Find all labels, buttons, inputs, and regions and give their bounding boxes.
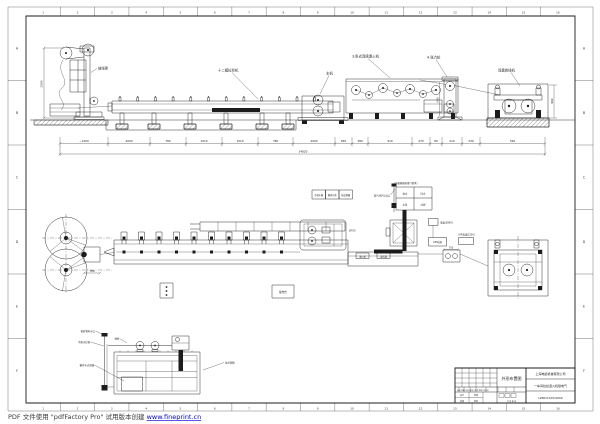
project-name: 一车间拉丝退火机组电气	[534, 383, 567, 388]
zone-col-label: 8	[282, 406, 284, 410]
takeup-plan	[488, 236, 548, 300]
payoff-label: 放线架	[98, 66, 109, 71]
watermark-prefix: PDF 文件使用 "pdfFactory Pro" 试用版本创建	[8, 412, 147, 421]
zone-col-label: 6	[214, 10, 216, 14]
accumulator-height-dim: 1465	[436, 97, 439, 103]
vertical-dimensions: 2500 990 1465	[40, 47, 558, 120]
company-name: 上海电缆机械有限公司	[535, 371, 565, 376]
watermark: PDF 文件使用 "pdfFactory Pro" 试用版本创建 www.fin…	[8, 412, 201, 421]
cell-4: 过滤	[421, 203, 426, 207]
cell-2: 回水	[421, 191, 426, 195]
zone-col-label: 11	[385, 406, 389, 410]
zone-row-label: B	[16, 111, 18, 115]
zone-row-label: A	[583, 46, 586, 50]
zone-col-label: 14	[487, 10, 491, 14]
zone-col-label: 13	[453, 10, 457, 14]
console-label: 操作台	[279, 290, 287, 294]
power-dim: 750	[449, 246, 454, 249]
hull-note: Ø700	[349, 230, 356, 233]
dim-value: 650	[341, 139, 347, 143]
field-design: 设计	[460, 393, 464, 397]
level-label: 平衡水位管	[78, 340, 91, 344]
zone-row-label: B	[583, 111, 585, 115]
dim-value: ~1200	[79, 139, 89, 143]
walkway-plan	[190, 222, 345, 231]
zone-col-label: 9	[317, 10, 319, 14]
field-review: 审核	[474, 393, 478, 397]
filter-label: 循环水过滤器	[80, 363, 95, 367]
field-check: 校核	[460, 399, 464, 403]
zone-row-label: F	[16, 369, 18, 373]
zone-row-label: D	[16, 240, 19, 244]
annealer-machine	[346, 79, 458, 119]
takeup-machine	[488, 84, 548, 118]
drawing-sheet: 1122334455667788991010111112121313141415…	[0, 0, 600, 424]
zone-col-label: 2	[77, 10, 79, 14]
zone-row-label: D	[583, 240, 586, 244]
dimension-chain: ~120020007801510151078020006503809102708…	[59, 137, 547, 147]
tank-detail: 接软管补水口 平衡水位管 循环水过滤器 滤网 拉丝液箱	[78, 329, 235, 394]
stair-box	[160, 283, 173, 298]
platform-tag-2: 变压器	[380, 254, 387, 258]
main-machine-plan: Ø700	[300, 220, 356, 250]
dim-value: 910	[387, 139, 393, 143]
zone-col-label: 3	[111, 406, 113, 410]
zone-row-label: C	[16, 175, 19, 179]
watermark-text: PDF 文件使用 "pdfFactory Pro" 试用版本创建 www.fin…	[8, 412, 201, 421]
ups-220-label: UPS电源(220V)	[459, 233, 475, 237]
zone-col-label: 5	[180, 406, 182, 410]
zone-col-label: 7	[248, 406, 250, 410]
zone-col-label: 12	[419, 10, 423, 14]
watermark-link[interactable]: www.fineprint.cn	[147, 413, 202, 421]
fill-label: 接软管补水口	[81, 329, 96, 333]
zone-col-label: 15	[522, 10, 526, 14]
dim-value: 380	[357, 139, 363, 143]
zone-col-label: 16	[556, 406, 560, 410]
takeup-height-dim: 990	[550, 98, 554, 104]
legend-strip: 冷却水箱 循环水泵 热交换器	[312, 190, 353, 199]
elevation-labels: 放线架 十二模拉丝机 主机 3.卧式连续退火机 4.张力轮 双盘收线机	[91, 54, 520, 100]
dim-value: 780	[273, 139, 279, 143]
zone-col-label: 1	[42, 406, 44, 410]
elevation-view: 放线架 十二模拉丝机 主机 3.卧式连续退火机 4.张力轮 双盘收线机 2500…	[30, 44, 575, 156]
plan-view: 780 Ø700	[42, 190, 548, 300]
steam-label: 蒸汽(排气)出口	[374, 193, 391, 197]
zone-col-label: 8	[282, 10, 284, 14]
zone-col-label: 5	[180, 10, 182, 14]
annealer-label: 3.卧式连续退火机	[352, 54, 380, 59]
zone-col-label: 4	[145, 10, 147, 14]
annealer-plan: 退火机 变压器	[348, 252, 488, 266]
payoff-stand	[50, 44, 112, 120]
cell-1: 进水	[403, 191, 408, 195]
zone-col-label: 1	[42, 10, 44, 14]
overall-dimension: 34820	[59, 146, 547, 156]
title-block: 上海电缆机械有限公司 一车间拉丝退火机组电气 LZ80-03/03-0000 标…	[455, 368, 575, 403]
tank-label: 拉丝液箱	[225, 361, 235, 365]
drawing-machine-label: 十二模拉丝机	[218, 68, 239, 73]
dim-value: 2000	[310, 139, 317, 143]
payoff-height-dim: 2500	[40, 80, 44, 87]
payoff-reels-plan: 780	[42, 214, 114, 294]
drawing-title: 外形布置图	[502, 375, 522, 381]
power-380-label: 电源(380V)	[440, 220, 453, 224]
zone-col-label: 13	[453, 406, 457, 410]
zone-col-label: 11	[385, 10, 389, 14]
power-boxes: 电源(380V) UPS电源 UPS电源(220V) 750	[429, 219, 475, 251]
drawing-machine-plan	[104, 232, 348, 264]
ups-380-label: UPS电源	[433, 240, 442, 244]
zone-row-label: E	[16, 304, 18, 308]
overall-dim: 34820	[299, 149, 308, 153]
dim-value: 520	[510, 139, 516, 143]
schematic-caption: (水箱规格按用户要求)	[394, 181, 417, 185]
zone-col-label: 2	[77, 406, 79, 410]
legend-1: 冷却水箱	[314, 193, 324, 197]
zone-col-label: 9	[317, 406, 319, 410]
reel-dim: 780	[89, 269, 95, 273]
field-approve: 批准	[474, 399, 478, 403]
platform-tag-1: 退火机	[359, 254, 366, 258]
dim-value: 270	[418, 139, 424, 143]
dim-value: 1510	[236, 139, 243, 143]
screen-label: 滤网	[115, 337, 119, 341]
zone-col-label: 16	[556, 10, 560, 14]
tension-tower	[438, 77, 462, 120]
drawing-machine	[108, 96, 333, 129]
legend-3: 热交换器	[341, 193, 351, 197]
zone-col-label: 12	[419, 406, 423, 410]
water-schematic: (水箱规格按用户要求) 进水 回水 水泵 过滤 蒸汽(排气)出口 电源(380V…	[374, 181, 475, 254]
signature-row: 标记 处数 分区 更改文件号 签名 年月日	[457, 388, 489, 392]
drawing-number: LZ80-03/03-0000	[538, 396, 562, 400]
legend-2: 循环水泵	[328, 193, 338, 197]
zone-row-label: E	[583, 304, 585, 308]
takeup-label: 双盘收线机	[498, 68, 516, 73]
sheet-note: 共 张 第 张	[507, 399, 516, 403]
zone-row-label: F	[583, 369, 585, 373]
tension-label: 4.张力轮	[427, 55, 441, 60]
zone-col-label: 6	[214, 406, 216, 410]
main-machine	[298, 95, 348, 124]
zone-col-label: 4	[145, 406, 147, 410]
cabinet-plan	[386, 220, 417, 246]
zone-col-label: 3	[111, 10, 113, 14]
cell-3: 水泵	[403, 203, 408, 207]
dim-value: 80	[434, 139, 438, 143]
dim-value: 2000	[125, 139, 132, 143]
console-box: 操作台	[272, 285, 294, 298]
zone-row-label: A	[16, 46, 19, 50]
dim-value: 780	[165, 139, 171, 143]
zone-col-label: 7	[248, 10, 250, 14]
zone-col-label: 10	[350, 406, 354, 410]
dim-value: 210	[449, 139, 455, 143]
tension-plan	[443, 250, 460, 262]
dim-value: 230	[468, 139, 474, 143]
zone-row-label: C	[583, 175, 586, 179]
dim-value: 1510	[200, 139, 207, 143]
zone-col-label: 10	[350, 10, 354, 14]
zone-col-label: 15	[522, 406, 526, 410]
zone-col-label: 14	[487, 406, 491, 410]
main-machine-label: 主机	[326, 71, 333, 76]
